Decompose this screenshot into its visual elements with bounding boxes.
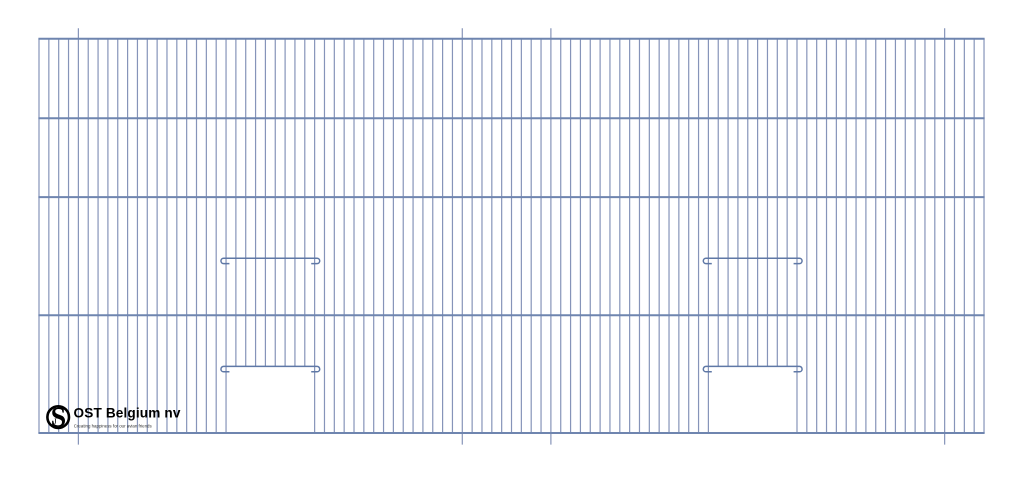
svg-text:OST Belgium nv: OST Belgium nv bbox=[74, 405, 181, 420]
svg-text:Creating happiness for our avi: Creating happiness for our avian friends bbox=[74, 423, 153, 428]
